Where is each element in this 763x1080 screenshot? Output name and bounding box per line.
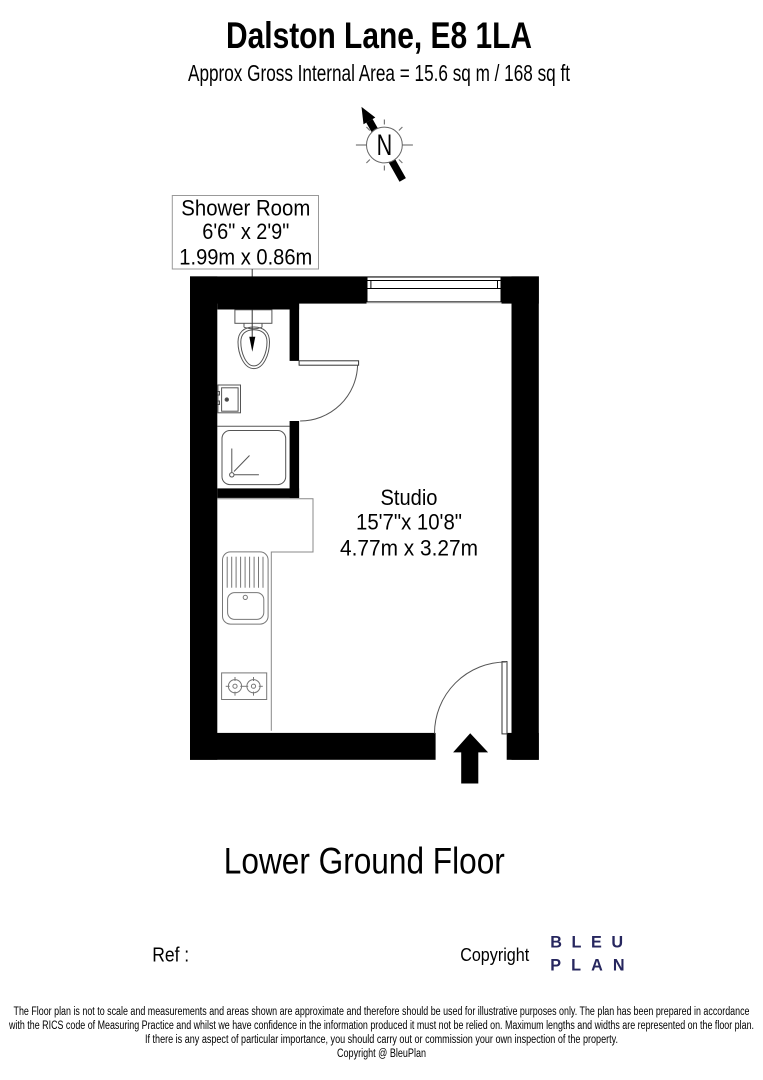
svg-text:Ref :: Ref : bbox=[152, 945, 189, 967]
svg-text:Dalston Lane, E8 1LA: Dalston Lane, E8 1LA bbox=[226, 15, 532, 56]
svg-text:15'7"x 10'8": 15'7"x 10'8" bbox=[356, 510, 462, 535]
svg-text:Lower Ground Floor: Lower Ground Floor bbox=[224, 839, 505, 881]
svg-text:Copyright: Copyright bbox=[460, 944, 530, 965]
svg-text:4.77m x 3.27m: 4.77m x 3.27m bbox=[340, 535, 478, 560]
svg-text:The Floor plan is not to scale: The Floor plan is not to scale and measu… bbox=[14, 1006, 750, 1018]
svg-text:6'6" x 2'9": 6'6" x 2'9" bbox=[202, 219, 289, 244]
svg-text:N: N bbox=[377, 129, 393, 162]
svg-text:BLEU: BLEU bbox=[550, 934, 632, 952]
svg-text:Copyright @ BleuPlan: Copyright @ BleuPlan bbox=[337, 1048, 426, 1060]
svg-text:Approx Gross Internal Area = 1: Approx Gross Internal Area = 15.6 sq m /… bbox=[188, 60, 570, 86]
svg-text:with the RICS code of Measurin: with the RICS code of Measuring Practice… bbox=[8, 1020, 754, 1032]
svg-text:If there is any aspect of part: If there is any aspect of particular imp… bbox=[145, 1034, 618, 1046]
svg-text:1.99m x 0.86m: 1.99m x 0.86m bbox=[179, 245, 312, 270]
svg-text:Studio: Studio bbox=[381, 485, 438, 510]
svg-text:PLAN: PLAN bbox=[550, 957, 634, 975]
svg-text:Shower Room: Shower Room bbox=[181, 196, 310, 221]
